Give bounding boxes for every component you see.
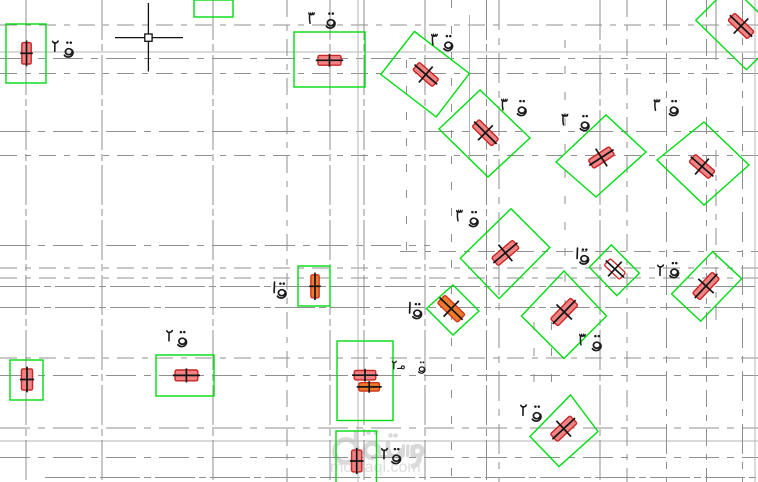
svg-text:mostaql.com: mostaql.com [330,459,421,476]
